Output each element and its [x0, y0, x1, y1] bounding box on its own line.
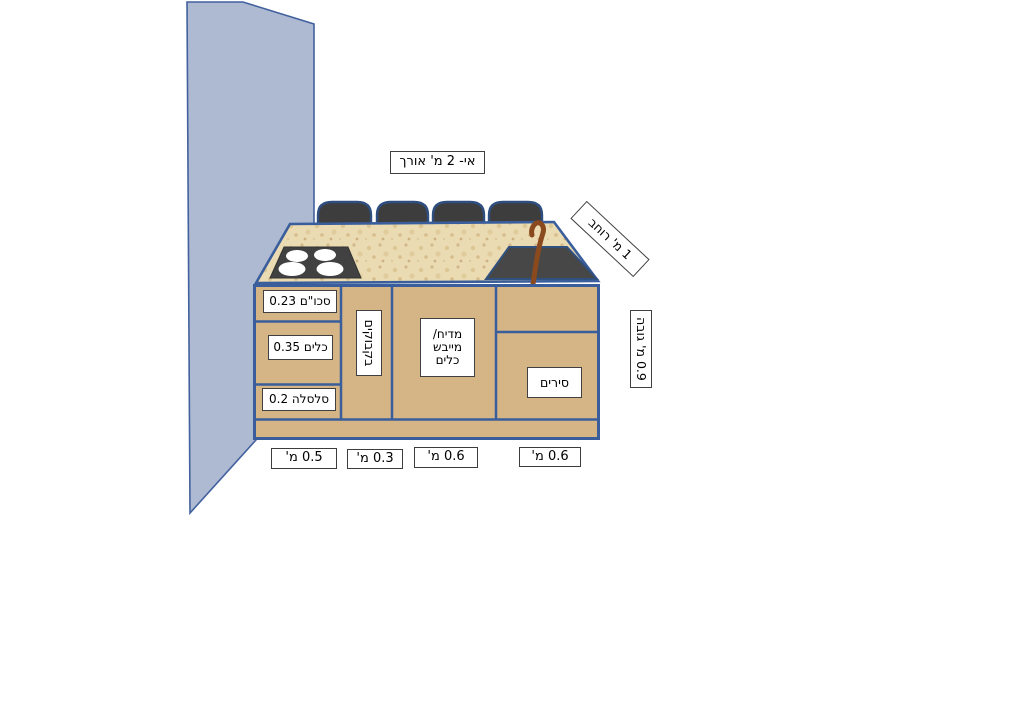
cutlery-drawer-label: סכו"ם 0.23	[263, 290, 337, 313]
dishes-drawer-label: כלים 0.35	[268, 335, 333, 360]
measurement-label-0.3m: 0.3 מ'	[347, 449, 403, 469]
measurement-label-0.6m-b: 0.6 מ'	[519, 447, 581, 467]
island-length-label: אי- 2 מ' אורך	[390, 151, 485, 174]
pots-cabinet-label: סירים	[527, 367, 582, 398]
burner-icon	[286, 250, 308, 262]
measurement-label-0.6m-a: 0.6 מ'	[414, 447, 478, 468]
kitchen-island-diagram: אי- 2 מ' אורך 1 מ' רוחב 0.9 מ' גובה סכו"…	[0, 0, 1024, 726]
pot-icon	[433, 202, 484, 224]
burner-icon	[317, 262, 344, 276]
burner-icon	[279, 262, 306, 276]
measurement-label-0.5m: 0.5 מ'	[271, 448, 337, 469]
dishwasher-cabinet-label: מדיח/ מייבש כלים	[420, 318, 475, 377]
basket-drawer-label: סלסלה 0.2	[262, 388, 336, 411]
burner-icon	[314, 249, 336, 261]
dishwasher-label-line3: כלים	[436, 354, 460, 367]
pot-icon	[377, 202, 428, 224]
dishwasher-label-line1: מדיח/	[433, 328, 462, 341]
pot-icon	[489, 202, 542, 224]
diagram-canvas	[0, 0, 1024, 726]
island-height-label: 0.9 מ' גובה	[630, 310, 652, 388]
pots-row	[318, 202, 542, 224]
bottles-cabinet-label: בקבוקים	[356, 310, 382, 376]
pot-icon	[318, 202, 371, 224]
